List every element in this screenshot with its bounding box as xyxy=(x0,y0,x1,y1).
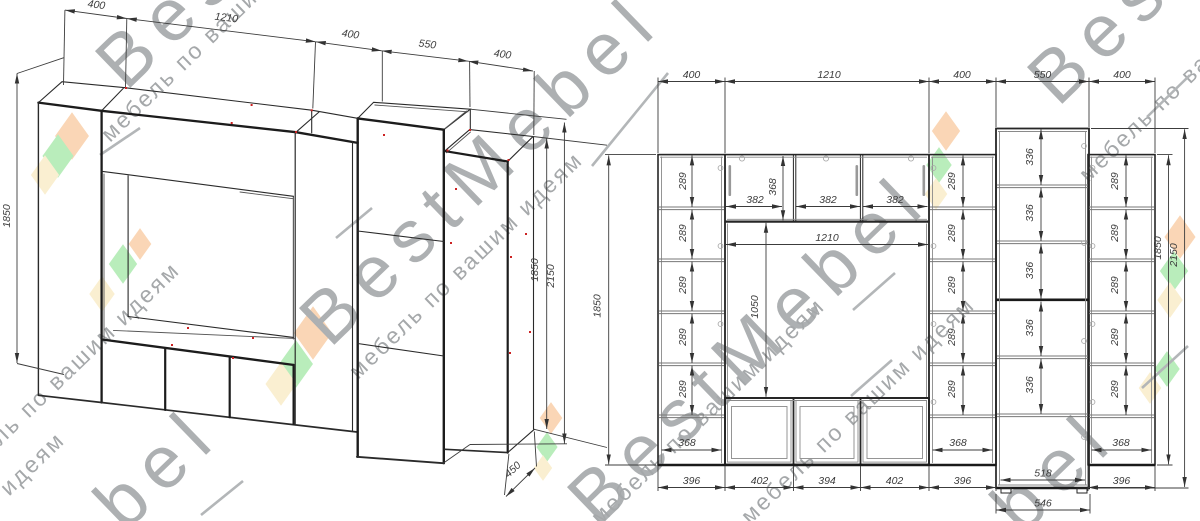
svg-text:336: 336 xyxy=(1024,148,1036,166)
svg-text:382: 382 xyxy=(746,194,764,206)
svg-text:289: 289 xyxy=(1109,172,1121,191)
svg-text:289: 289 xyxy=(677,380,689,399)
svg-text:289: 289 xyxy=(946,276,958,295)
svg-text:1850: 1850 xyxy=(592,294,604,318)
svg-text:289: 289 xyxy=(677,172,689,191)
svg-text:289: 289 xyxy=(1109,328,1121,347)
svg-text:550: 550 xyxy=(418,37,437,51)
svg-text:400: 400 xyxy=(341,27,360,41)
svg-text:1210: 1210 xyxy=(817,69,841,81)
svg-text:2150: 2150 xyxy=(545,264,557,289)
svg-text:368: 368 xyxy=(767,178,779,196)
svg-text:382: 382 xyxy=(886,194,904,206)
svg-text:289: 289 xyxy=(946,172,958,191)
svg-text:382: 382 xyxy=(819,194,837,206)
svg-text:289: 289 xyxy=(1109,276,1121,295)
svg-text:289: 289 xyxy=(677,224,689,243)
svg-text:396: 396 xyxy=(683,475,701,487)
svg-text:336: 336 xyxy=(1024,262,1036,280)
svg-text:289: 289 xyxy=(946,328,958,347)
svg-text:1850: 1850 xyxy=(1152,236,1164,260)
svg-text:1850: 1850 xyxy=(1,204,13,228)
svg-text:289: 289 xyxy=(946,224,958,243)
svg-text:400: 400 xyxy=(1113,69,1131,81)
svg-text:368: 368 xyxy=(1112,437,1130,449)
svg-text:289: 289 xyxy=(946,380,958,399)
svg-text:289: 289 xyxy=(677,276,689,295)
svg-text:550: 550 xyxy=(1034,69,1052,81)
svg-text:289: 289 xyxy=(677,328,689,347)
svg-text:1210: 1210 xyxy=(815,232,839,244)
svg-text:368: 368 xyxy=(949,437,967,449)
svg-text:1850: 1850 xyxy=(529,258,541,282)
svg-text:400: 400 xyxy=(683,69,701,81)
svg-text:289: 289 xyxy=(1109,224,1121,243)
svg-text:396: 396 xyxy=(954,475,972,487)
svg-text:396: 396 xyxy=(1113,475,1131,487)
svg-text:336: 336 xyxy=(1024,319,1036,337)
svg-text:336: 336 xyxy=(1024,376,1036,394)
svg-text:402: 402 xyxy=(886,475,904,487)
svg-text:546: 546 xyxy=(1034,498,1052,510)
svg-text:518: 518 xyxy=(1034,468,1052,480)
svg-text:289: 289 xyxy=(1109,380,1121,399)
svg-text:402: 402 xyxy=(751,475,769,487)
svg-text:394: 394 xyxy=(818,475,836,487)
svg-text:368: 368 xyxy=(678,437,696,449)
svg-text:1050: 1050 xyxy=(749,295,761,319)
svg-text:2150: 2150 xyxy=(1168,243,1180,268)
svg-text:336: 336 xyxy=(1024,204,1036,222)
svg-text:400: 400 xyxy=(953,69,971,81)
